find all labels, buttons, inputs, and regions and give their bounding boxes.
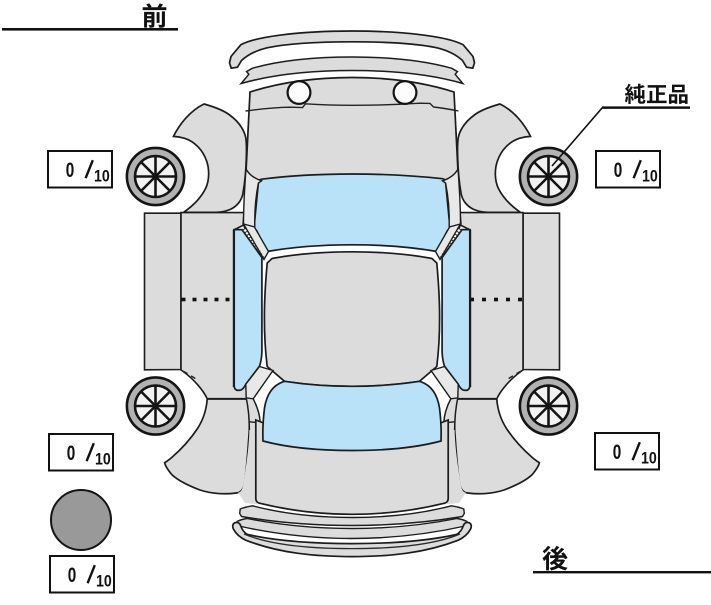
svg-text:0: 0 xyxy=(66,159,75,182)
svg-text:0: 0 xyxy=(614,159,623,182)
svg-text:10: 10 xyxy=(642,167,658,185)
svg-text:10: 10 xyxy=(95,450,111,468)
svg-text:0: 0 xyxy=(613,441,622,464)
svg-text:0: 0 xyxy=(67,442,76,465)
svg-text:10: 10 xyxy=(94,167,110,185)
svg-text:0: 0 xyxy=(68,564,77,587)
svg-text:10: 10 xyxy=(641,449,657,467)
svg-text:10: 10 xyxy=(96,572,112,590)
